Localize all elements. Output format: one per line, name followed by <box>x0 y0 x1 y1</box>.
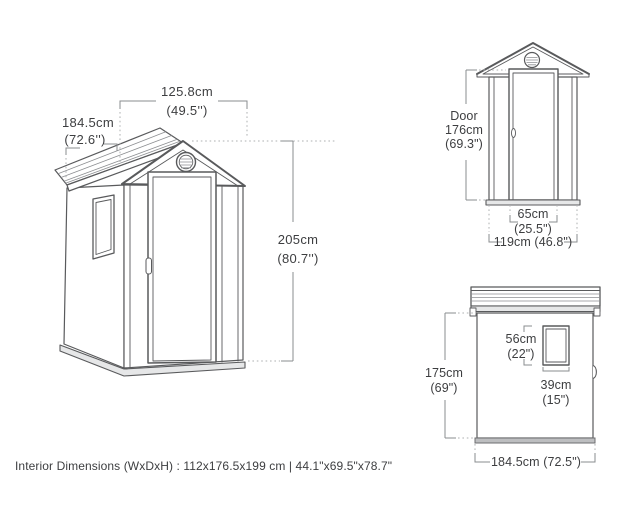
front-door-handle <box>512 129 516 138</box>
front-vent-icon <box>525 53 540 68</box>
side-shed-drawing <box>470 287 600 443</box>
iso-vent-icon <box>177 153 196 172</box>
side-view: 56cm (22") 39cm (15") 175cm (69") 184.5c… <box>425 287 600 469</box>
iso-view: 125.8cm (49.5'') 184.5cm (72.6'') 205cm … <box>55 84 336 376</box>
iso-width-inches-label: (49.5'') <box>166 103 207 118</box>
side-roof <box>470 287 600 316</box>
side-window-width-label: 39cm <box>541 378 572 392</box>
front-base <box>486 200 580 205</box>
front-door-label: Door <box>450 109 478 123</box>
front-door-height-label: 176cm <box>445 123 483 137</box>
iso-depth-inches-label: (72.6'') <box>64 132 105 147</box>
iso-height-label: 205cm <box>278 232 319 247</box>
diagram-canvas: 125.8cm (49.5'') 184.5cm (72.6'') 205cm … <box>0 0 633 517</box>
front-door-width-dimension: 65cm (25.5") <box>510 205 557 236</box>
iso-depth-label: 184.5cm <box>62 115 114 130</box>
side-base-depth-label: 184.5cm (72.5") <box>491 455 581 469</box>
side-window <box>543 326 569 365</box>
side-base-depth-dimension: 184.5cm (72.5") <box>475 444 595 469</box>
side-wall-height-inches-label: (69") <box>430 381 457 395</box>
side-wall-height-label: 175cm <box>425 366 463 380</box>
side-window-height-label: 56cm <box>506 332 537 346</box>
iso-door <box>146 172 216 363</box>
side-window-height-dimension: 56cm (22") <box>506 326 537 365</box>
interior-dimensions-text: Interior Dimensions (WxDxH) : 112x176.5x… <box>15 459 392 473</box>
front-door-width-inches-label: (25.5") <box>514 222 552 236</box>
front-door-width-label: 65cm <box>518 207 549 221</box>
iso-width-label: 125.8cm <box>161 84 213 99</box>
iso-side-window <box>93 195 114 259</box>
iso-shed-drawing <box>55 128 245 376</box>
side-window-height-inches-label: (22") <box>507 347 534 361</box>
shed-dimension-diagram: 125.8cm (49.5'') 184.5cm (72.6'') 205cm … <box>0 0 633 517</box>
side-base <box>475 438 595 443</box>
side-wall-height-dimension: 175cm (69") <box>425 313 476 438</box>
front-view: Door 176cm (69.3") 65cm (25.5") 119cm (4… <box>445 43 589 249</box>
front-door-height-inches-label: (69.3") <box>445 137 483 151</box>
front-base-width-label: 119cm (46.8") <box>494 235 572 249</box>
iso-height-inches-label: (80.7'') <box>277 251 318 266</box>
iso-door-handle <box>146 258 152 274</box>
side-door-handle <box>593 366 596 379</box>
front-door <box>509 69 558 200</box>
side-window-width-inches-label: (15") <box>542 393 569 407</box>
front-shed-drawing <box>477 43 589 205</box>
